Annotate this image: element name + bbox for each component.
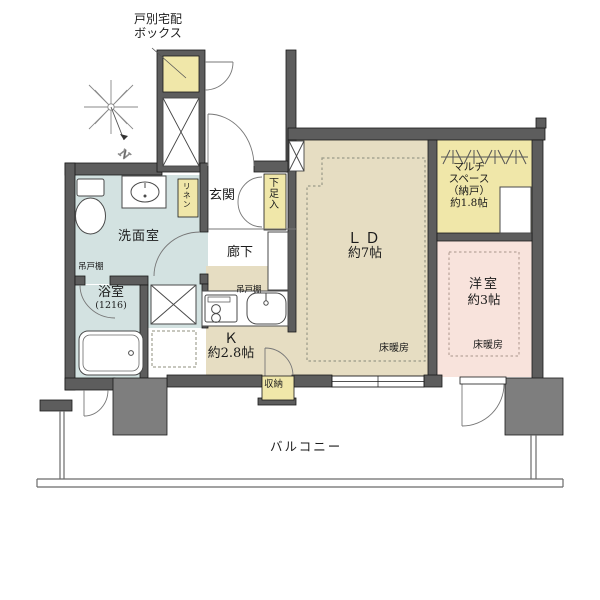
multi-space-line4: 約1.8帖	[436, 197, 502, 209]
western-room-floor-heating-label: 床暖房	[473, 340, 503, 352]
kitchen-cupboard-label: 吊戸棚	[236, 286, 262, 296]
linen-label: リネン	[182, 182, 191, 209]
ld-window	[332, 376, 424, 387]
kitchen-area: 約2.8帖	[190, 347, 272, 362]
delivery-box-door-arc	[205, 62, 233, 90]
bathroom-label: 浴室 (1216)	[80, 286, 142, 312]
kitchen-name: Ｋ	[190, 331, 272, 347]
shoe-box-door-arcs	[238, 177, 262, 227]
ld-floor-heating-label: 床暖房	[379, 343, 409, 355]
multi-space-line3: （納戸）	[436, 185, 502, 197]
bathroom-size: (1216)	[80, 301, 142, 312]
bathtub-icon	[79, 331, 143, 375]
stove-icon	[205, 295, 237, 322]
entry-door-arc	[208, 114, 254, 166]
pillar-left	[113, 378, 167, 435]
multi-space-counter-icon	[500, 187, 531, 233]
western-room-floor	[437, 241, 532, 377]
shoe-box-label: 下足入	[266, 177, 278, 210]
delivery-box-label-line2: ボックス	[116, 27, 200, 41]
compass-north-label: N	[116, 146, 133, 163]
storage-label: 収納	[264, 380, 283, 391]
entrance-label: 玄関	[209, 189, 235, 204]
western-room-name: 洋室	[442, 278, 526, 293]
toilet-bowl-icon	[76, 198, 106, 234]
service-door-arc	[84, 390, 108, 416]
floor-plan: N 戸別宅配 ボックス 玄関 下足入 廊下 洗面室 吊戸棚 リネン 浴室 (12…	[0, 0, 600, 600]
living-dining-label: ＬＤ 約7帖	[325, 230, 405, 262]
multi-space-label: マルチ スペース （納戸） 約1.8帖	[436, 161, 502, 209]
meter-box	[163, 98, 199, 166]
compass-icon: N	[84, 80, 138, 163]
washer-space-icon	[151, 285, 196, 324]
bathroom-name: 浴室	[80, 286, 142, 301]
kitchen-label: Ｋ 約2.8帖	[190, 331, 272, 362]
living-dining-area: 約7帖	[325, 247, 405, 262]
hallway-label: 廊下	[227, 246, 253, 261]
sink-icon	[247, 293, 286, 324]
multi-space-line1: マルチ	[436, 161, 502, 173]
living-dining-name: ＬＤ	[325, 230, 405, 247]
western-room-door-panel	[460, 377, 506, 384]
washroom-cupboard-label: 吊戸棚	[78, 263, 104, 273]
western-room-balcony-door-arc	[462, 384, 504, 426]
pipe-space-box	[289, 141, 304, 171]
washroom-label: 洗面室	[118, 230, 160, 245]
western-room-area: 約3帖	[442, 293, 526, 307]
delivery-box-label: 戸別宅配 ボックス	[116, 13, 200, 41]
pillar-right	[505, 378, 563, 435]
tall-cabinet-icon	[268, 232, 288, 290]
western-room-label: 洋室 約3帖	[442, 278, 526, 307]
balcony-label: バルコニー	[270, 440, 342, 454]
delivery-box-label-line1: 戸別宅配	[116, 13, 200, 27]
toilet-tank-icon	[77, 179, 104, 196]
multi-space-line2: スペース	[436, 173, 502, 185]
